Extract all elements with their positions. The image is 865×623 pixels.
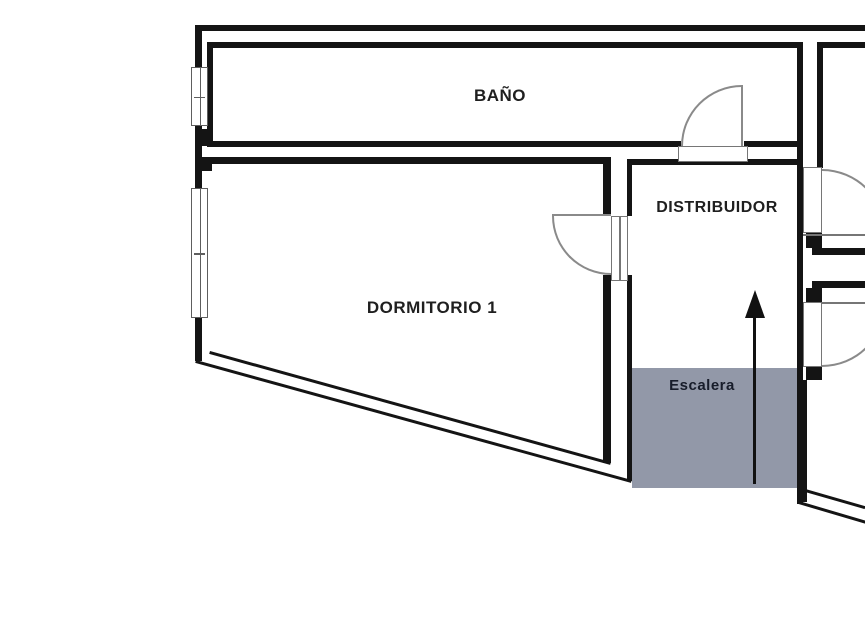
hall-wall-left-upper — [627, 159, 632, 216]
bathroom-wall-top — [207, 42, 803, 48]
right-partition-wall-upper — [817, 42, 823, 168]
room-label-bathroom: BAÑO — [440, 86, 560, 106]
floor-plan: Escalera — [0, 0, 865, 623]
bathroom-wall-bottom-right — [744, 141, 803, 147]
window-icon-bedroom — [191, 188, 208, 318]
right-door-arc-lower-icon — [822, 303, 865, 367]
right-door-jamb-lower — [803, 302, 822, 367]
bedroom-door-arc-icon — [552, 216, 611, 275]
bathroom-door-arc-icon — [681, 85, 742, 146]
room-label-hall: DISTRIBUIDOR — [637, 199, 797, 217]
right-door-arc-upper-icon — [822, 169, 865, 233]
bathroom-door-threshold — [678, 146, 748, 162]
right-rooms-divider-upper — [812, 248, 865, 255]
bedroom-wall-right-lower — [603, 275, 611, 463]
stairs-label: Escalera — [632, 377, 772, 394]
stairs-up-arrow-head-icon — [745, 290, 765, 318]
wall-junction-left-lower — [195, 157, 212, 171]
bedroom-wall-bottom-diagonal — [209, 351, 611, 465]
window-tick — [194, 253, 205, 255]
bedroom-threshold-midline — [619, 217, 621, 280]
wall-junction-left-upper — [195, 129, 212, 146]
exterior-wall-bottom-diagonal — [195, 360, 632, 483]
room-label-bedroom: DORMITORIO 1 — [352, 298, 512, 318]
bedroom-wall-top — [207, 157, 611, 164]
right-wall-chunk-b — [806, 288, 822, 303]
right-rooms-divider-lower — [812, 281, 865, 288]
bedroom-wall-right-upper — [603, 157, 611, 216]
window-icon-bathroom — [191, 67, 208, 126]
bathroom-wall-bottom-left — [207, 141, 681, 147]
right-door-jamb-upper — [803, 167, 822, 233]
exterior-wall-top — [195, 25, 865, 31]
stairs-up-arrow-line — [753, 315, 756, 484]
right-wall-bottom-vertical — [799, 380, 807, 502]
right-room-face-line-upper — [803, 234, 865, 236]
window-tick — [194, 97, 205, 99]
right-wall-chunk-c — [806, 367, 822, 380]
hall-wall-left-lower — [627, 275, 632, 481]
right-room-wall-top — [820, 42, 865, 48]
